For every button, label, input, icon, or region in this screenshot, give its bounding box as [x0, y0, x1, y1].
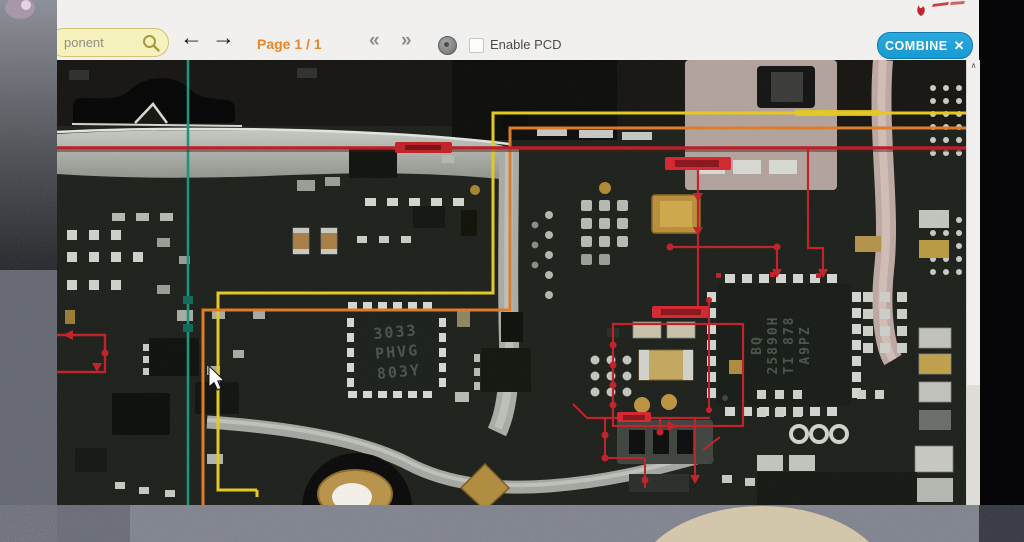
scrollbar-track-lower	[967, 385, 980, 505]
pcb-grain	[57, 60, 966, 505]
combine-scissors-icon: ✕	[954, 38, 965, 54]
app-window: ← → Page 1 / 1 « » Enable PCD COMBINE ✕	[0, 0, 1024, 542]
vertical-scrollbar[interactable]: ∧	[966, 60, 980, 505]
combine-button[interactable]: COMBINE ✕	[877, 32, 973, 59]
enable-pcd-checkbox[interactable]	[469, 38, 484, 53]
page-indicator: Page 1 / 1	[257, 36, 322, 52]
first-page-icon[interactable]: «	[369, 31, 380, 50]
search-icon[interactable]	[141, 33, 161, 53]
combine-button-label: COMBINE	[885, 39, 948, 53]
last-page-icon[interactable]: »	[401, 31, 412, 50]
pcb-viewport[interactable]: 3033 PHVG 803Y	[57, 60, 966, 505]
scroll-up-icon[interactable]: ∧	[967, 61, 980, 70]
gear-icon[interactable]	[438, 36, 457, 55]
search-input[interactable]	[57, 35, 141, 50]
back-arrow-icon[interactable]: ←	[180, 26, 203, 49]
enable-pcd-label: Enable PCD	[490, 37, 562, 52]
forward-arrow-icon[interactable]: →	[212, 26, 235, 49]
component-search-box[interactable]	[57, 28, 169, 57]
toolbar: ← → Page 1 / 1 « » Enable PCD COMBINE ✕	[57, 0, 979, 60]
brand-logo	[903, 0, 973, 22]
